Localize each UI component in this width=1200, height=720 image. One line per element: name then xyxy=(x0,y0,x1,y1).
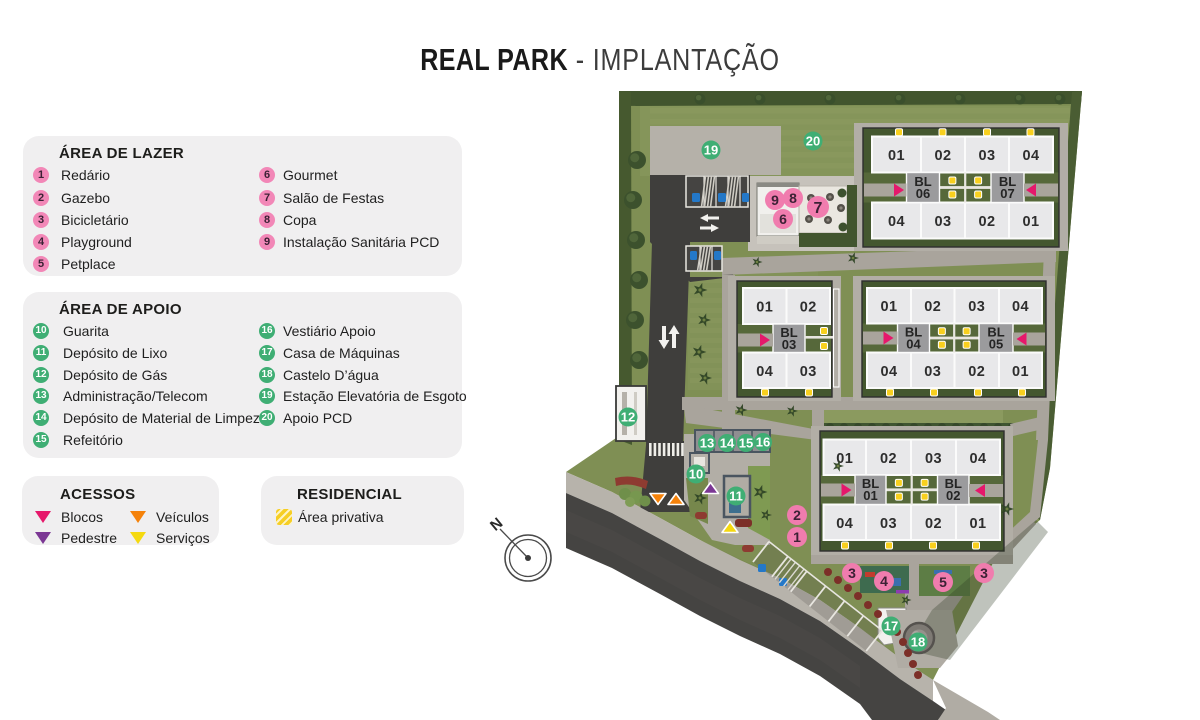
svg-text:10: 10 xyxy=(689,467,703,482)
svg-text:01: 01 xyxy=(1012,364,1029,380)
svg-text:5: 5 xyxy=(939,574,947,590)
svg-text:1: 1 xyxy=(793,529,801,545)
svg-text:17: 17 xyxy=(884,619,898,634)
svg-text:02: 02 xyxy=(924,299,941,315)
svg-text:04: 04 xyxy=(1012,299,1029,315)
svg-text:3: 3 xyxy=(980,565,988,581)
svg-text:04: 04 xyxy=(888,214,905,230)
svg-text:04: 04 xyxy=(881,364,898,380)
svg-text:7: 7 xyxy=(814,200,823,217)
svg-text:15: 15 xyxy=(739,436,753,451)
svg-text:6: 6 xyxy=(779,211,787,227)
svg-text:14: 14 xyxy=(720,436,735,451)
svg-text:06: 06 xyxy=(916,186,930,201)
svg-text:01: 01 xyxy=(756,300,773,316)
svg-text:04: 04 xyxy=(836,516,853,532)
svg-text:04: 04 xyxy=(1023,148,1040,164)
svg-text:03: 03 xyxy=(924,364,941,380)
svg-text:01: 01 xyxy=(888,148,905,164)
svg-text:02: 02 xyxy=(880,451,897,467)
svg-text:12: 12 xyxy=(621,410,635,425)
svg-text:20: 20 xyxy=(806,134,820,149)
svg-text:9: 9 xyxy=(771,192,779,208)
svg-text:16: 16 xyxy=(756,435,770,450)
svg-text:19: 19 xyxy=(704,143,718,158)
svg-text:04: 04 xyxy=(756,364,773,380)
svg-text:03: 03 xyxy=(979,148,996,164)
svg-text:03: 03 xyxy=(925,451,942,467)
svg-text:02: 02 xyxy=(800,300,817,316)
svg-text:05: 05 xyxy=(989,337,1003,352)
svg-text:3: 3 xyxy=(848,565,856,581)
svg-text:8: 8 xyxy=(789,190,797,206)
svg-text:01: 01 xyxy=(1023,214,1040,230)
svg-text:13: 13 xyxy=(700,436,714,451)
svg-text:02: 02 xyxy=(968,364,985,380)
svg-text:04: 04 xyxy=(970,451,987,467)
svg-text:03: 03 xyxy=(968,299,985,315)
svg-text:04: 04 xyxy=(906,337,921,352)
svg-text:4: 4 xyxy=(880,573,888,589)
svg-text:07: 07 xyxy=(1000,186,1014,201)
svg-text:02: 02 xyxy=(935,148,952,164)
svg-text:03: 03 xyxy=(800,364,817,380)
svg-text:01: 01 xyxy=(863,488,877,503)
svg-text:02: 02 xyxy=(979,214,996,230)
svg-text:11: 11 xyxy=(729,489,743,504)
svg-text:03: 03 xyxy=(782,337,796,352)
svg-text:03: 03 xyxy=(880,516,897,532)
svg-text:02: 02 xyxy=(946,488,960,503)
svg-text:02: 02 xyxy=(925,516,942,532)
svg-text:2: 2 xyxy=(793,507,801,523)
svg-text:03: 03 xyxy=(935,214,952,230)
svg-text:18: 18 xyxy=(911,635,925,650)
svg-text:01: 01 xyxy=(881,299,898,315)
svg-text:01: 01 xyxy=(970,516,987,532)
